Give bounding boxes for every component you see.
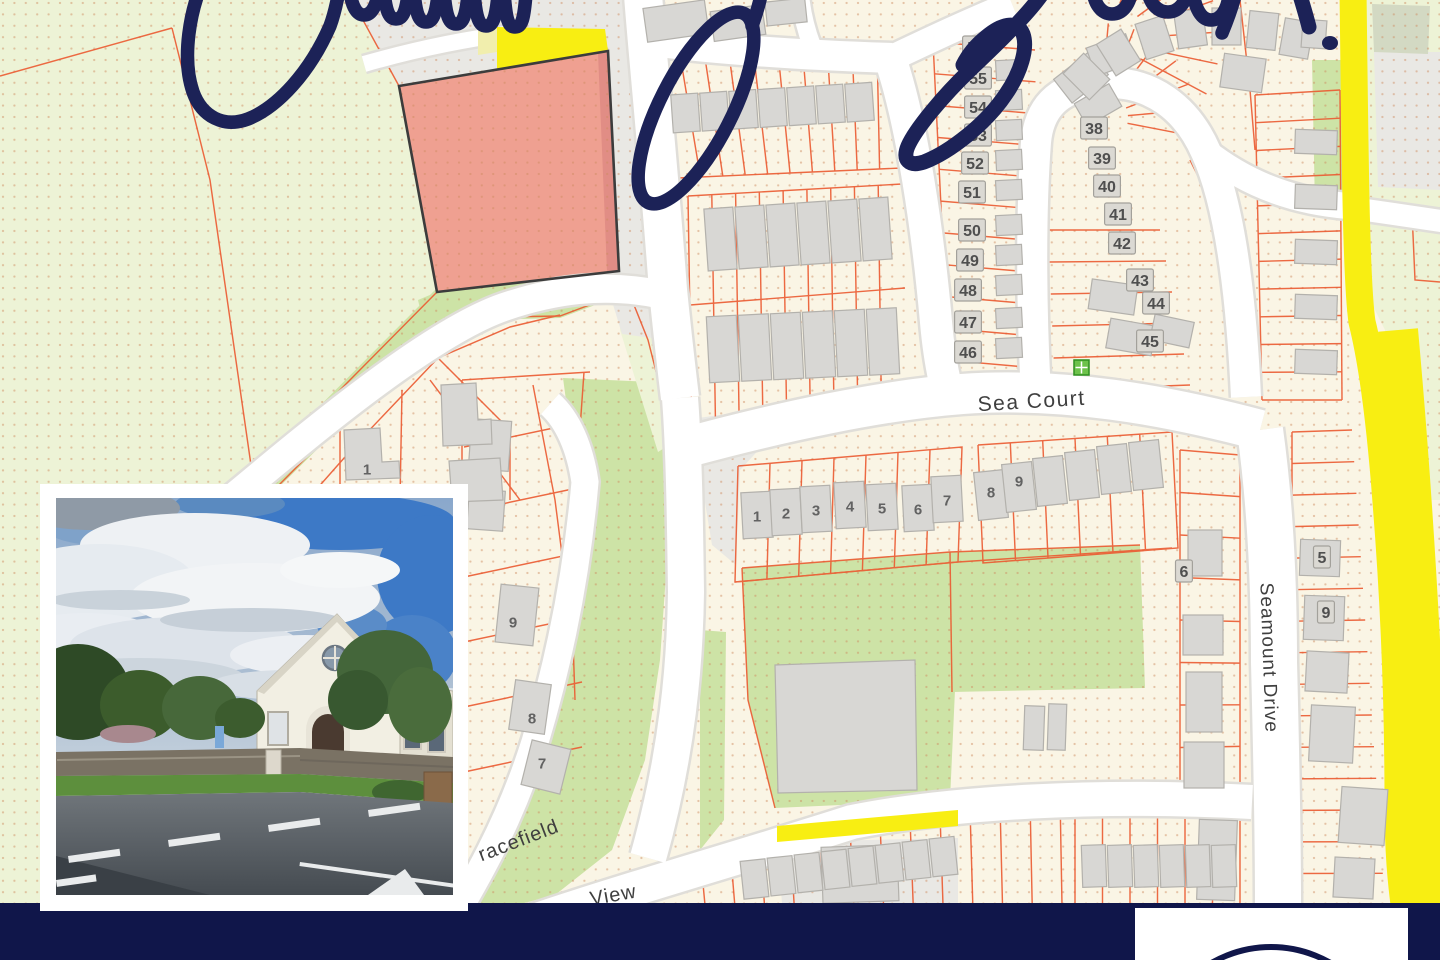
svg-text:42: 42 xyxy=(1113,236,1131,253)
svg-text:2: 2 xyxy=(782,505,790,522)
svg-text:46: 46 xyxy=(959,345,977,362)
svg-text:43: 43 xyxy=(1131,273,1149,290)
svg-text:6: 6 xyxy=(1180,564,1189,581)
svg-text:40: 40 xyxy=(1098,179,1116,196)
svg-text:4: 4 xyxy=(846,498,855,515)
svg-text:50: 50 xyxy=(963,223,981,240)
svg-text:5: 5 xyxy=(1318,550,1327,567)
svg-text:9: 9 xyxy=(1322,605,1331,622)
svg-text:41: 41 xyxy=(1109,207,1127,224)
svg-text:48: 48 xyxy=(959,283,977,300)
svg-text:6: 6 xyxy=(914,501,922,518)
svg-text:52: 52 xyxy=(966,156,984,173)
svg-text:44: 44 xyxy=(1147,296,1165,313)
svg-text:49: 49 xyxy=(961,253,979,270)
svg-text:9: 9 xyxy=(509,614,517,631)
svg-text:8: 8 xyxy=(987,484,995,501)
svg-text:8: 8 xyxy=(528,710,536,727)
svg-text:5: 5 xyxy=(878,500,886,517)
svg-text:51: 51 xyxy=(963,185,981,202)
svg-text:39: 39 xyxy=(1093,151,1111,168)
svg-text:45: 45 xyxy=(1141,334,1159,351)
svg-text:1: 1 xyxy=(753,508,761,525)
svg-text:3: 3 xyxy=(812,502,820,519)
svg-text:7: 7 xyxy=(943,492,951,509)
svg-text:7: 7 xyxy=(538,755,546,772)
svg-text:47: 47 xyxy=(959,315,977,332)
svg-text:38: 38 xyxy=(1085,121,1103,138)
svg-text:9: 9 xyxy=(1015,473,1023,490)
svg-text:1: 1 xyxy=(363,461,371,478)
